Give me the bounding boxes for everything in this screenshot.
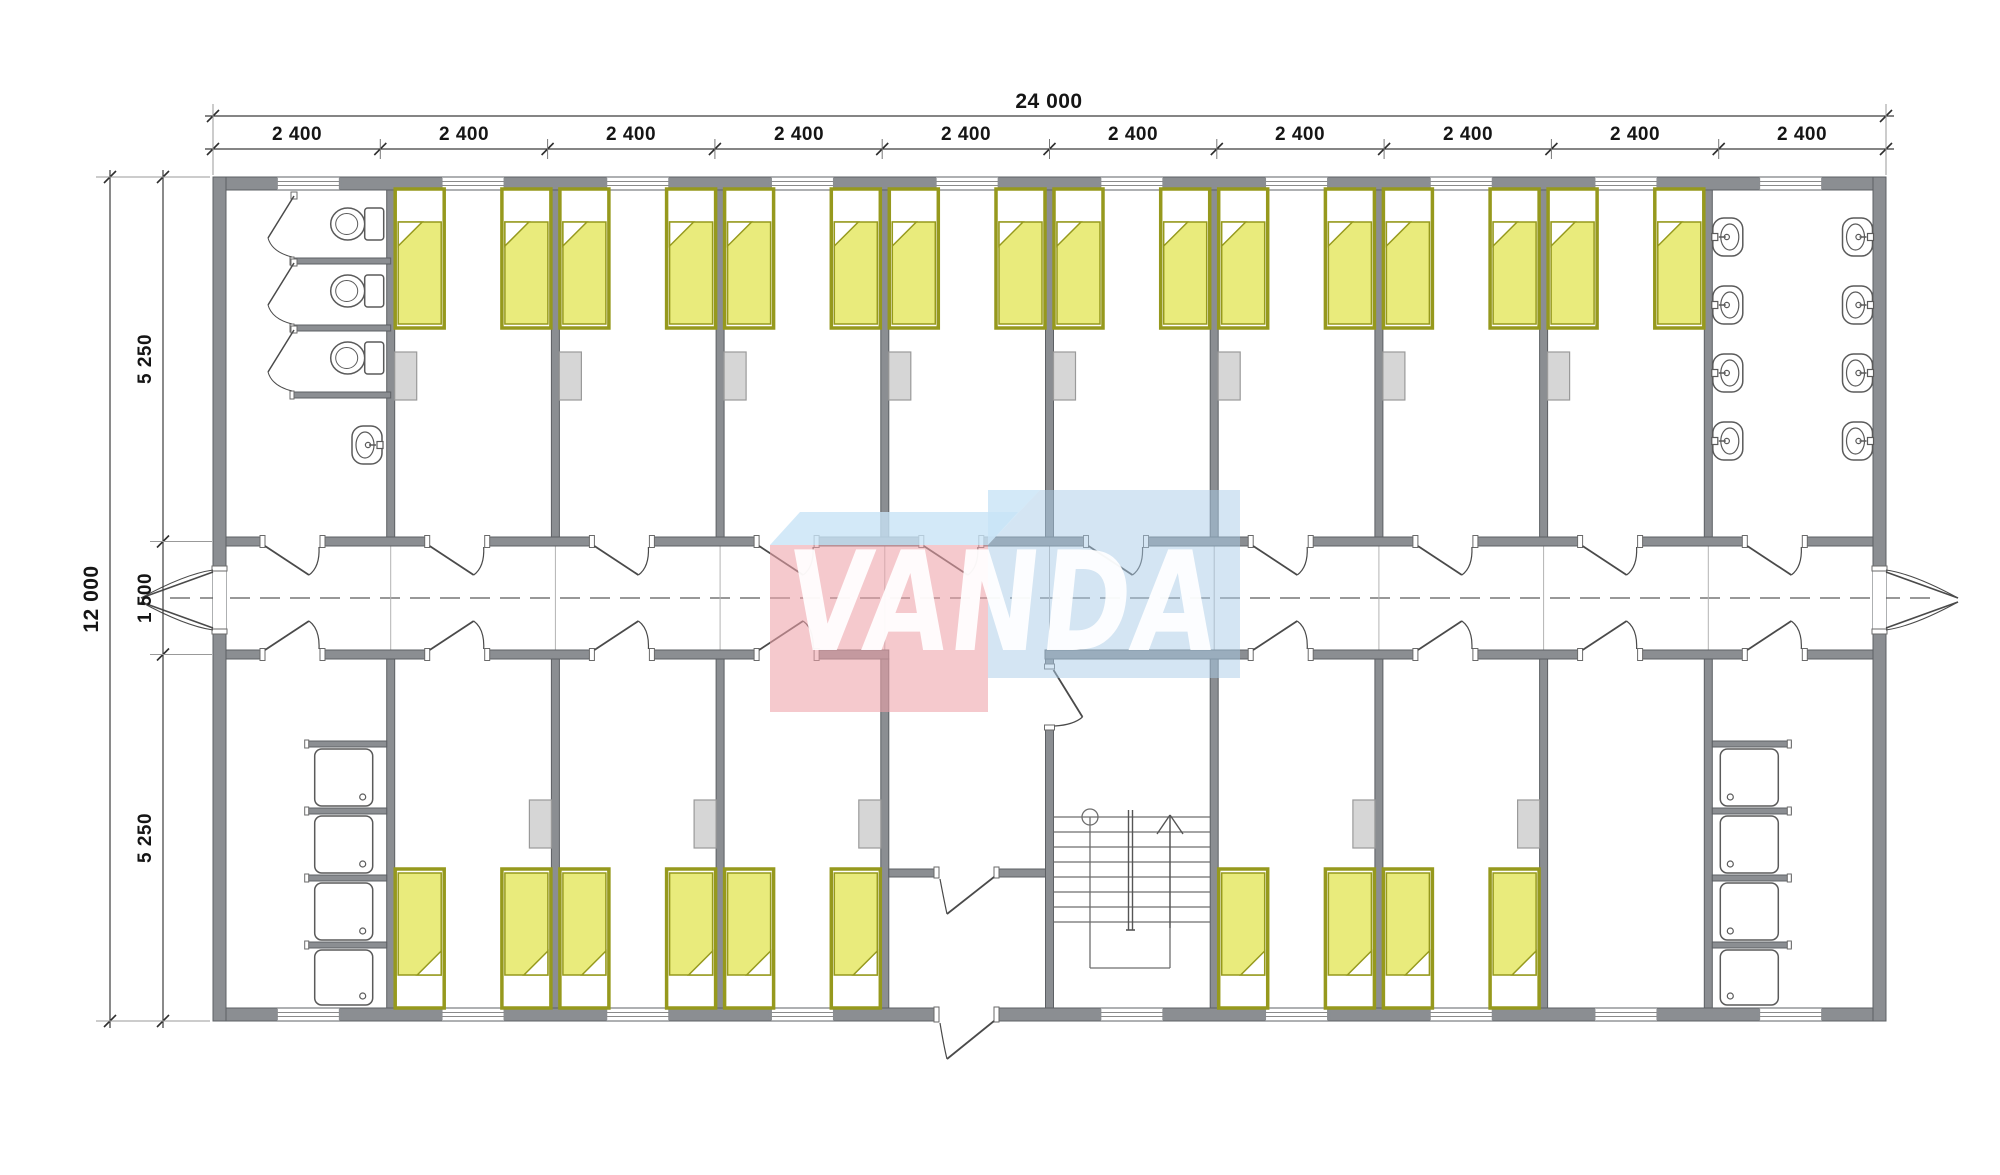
window-frame: [833, 1009, 836, 1020]
window: [1760, 1009, 1822, 1021]
door-jamb: [290, 391, 294, 399]
stall-door-leaf: [268, 196, 294, 238]
dim-module-2: 2 400: [424, 124, 504, 146]
sink-tap: [1868, 234, 1874, 241]
door-leaf: [1747, 621, 1791, 650]
door-swing-arc: [1791, 621, 1801, 649]
door-jamb: [305, 807, 309, 815]
dim-module-10: 2 400: [1762, 124, 1842, 146]
door-leaf: [1253, 621, 1297, 650]
door-swing-arc: [638, 621, 648, 649]
exterior-door-opening: [1873, 570, 1886, 630]
floor-plan-canvas: 24 000 2 400 2 400 2 400 2 400 2 400 2 4…: [0, 0, 2000, 1175]
door-jamb: [1872, 629, 1887, 634]
window-frame: [440, 1009, 443, 1020]
window: [442, 178, 504, 190]
dim-module-6: 2 400: [1093, 124, 1173, 146]
door-jamb: [1473, 536, 1478, 548]
stair-up-arrow: [1170, 815, 1183, 834]
shower-tray: [315, 816, 373, 873]
door-jamb: [260, 536, 265, 548]
shower-partition: [308, 942, 387, 948]
door-jamb: [305, 874, 309, 882]
dim-left-total: 12 000: [80, 565, 104, 632]
door-jamb: [994, 867, 999, 878]
door-swing-arc: [1627, 621, 1637, 649]
locker: [889, 352, 911, 400]
locker: [559, 352, 581, 400]
stall-door-leaf: [268, 263, 294, 305]
door-jamb: [934, 867, 939, 878]
door-leaf: [1886, 572, 1958, 598]
shower-partition: [1712, 808, 1791, 814]
window-frame: [1821, 1009, 1824, 1020]
sink-tap: [1712, 370, 1718, 377]
window: [442, 1009, 504, 1021]
door-jamb: [1578, 649, 1583, 661]
window: [771, 178, 833, 190]
door-opening: [1582, 650, 1639, 660]
window-frame: [275, 178, 278, 189]
door-leaf: [265, 621, 309, 650]
shower-partition: [308, 741, 387, 747]
shower-tray: [1720, 749, 1778, 806]
dim-module-7: 2 400: [1260, 124, 1340, 146]
window-frame: [1263, 1009, 1266, 1020]
door-jamb: [1787, 740, 1791, 748]
dim-left-segment-2: 1 500: [135, 573, 157, 623]
door-jamb: [649, 649, 654, 661]
door-opening: [593, 537, 650, 547]
door-jamb: [305, 941, 309, 949]
dim-module-5: 2 400: [926, 124, 1006, 146]
door-jamb: [1413, 649, 1418, 661]
stall-door-leaf: [268, 330, 294, 372]
door-swing-arc: [1791, 547, 1801, 575]
door-leaf: [594, 621, 638, 650]
door-swing-arc: [1462, 547, 1472, 575]
door-jamb: [754, 536, 759, 548]
window-frame: [1098, 1009, 1101, 1020]
stall-door-arc: [268, 305, 292, 324]
window-frame: [1821, 178, 1824, 189]
door-jamb: [305, 740, 309, 748]
door-swing-arc: [1055, 717, 1083, 726]
door-leaf: [1886, 602, 1958, 628]
door-jamb: [589, 649, 594, 661]
window-frame: [504, 1009, 507, 1020]
window-frame: [1162, 1009, 1165, 1020]
dim-module-4: 2 400: [759, 124, 839, 146]
shower-tray: [315, 883, 373, 940]
door-jamb: [1045, 725, 1055, 730]
door-jamb: [260, 649, 265, 661]
door-jamb: [1473, 649, 1478, 661]
door-jamb: [1802, 536, 1807, 548]
dim-module-8: 2 400: [1428, 124, 1508, 146]
window: [1430, 1009, 1492, 1021]
door-opening: [1582, 537, 1639, 547]
window-frame: [1592, 1009, 1595, 1020]
door-jamb: [1308, 536, 1313, 548]
door-opening: [1252, 537, 1309, 547]
sink-tap: [377, 442, 383, 449]
dim-top-total: 24 000: [949, 90, 1149, 114]
shower-partition: [308, 875, 387, 881]
window: [1430, 178, 1492, 190]
window: [607, 178, 669, 190]
toilet-stall-partition: [293, 392, 391, 398]
sink-tap: [1868, 370, 1874, 377]
window-frame: [1757, 1009, 1760, 1020]
shower-partition: [1712, 875, 1791, 881]
window: [607, 1009, 669, 1021]
sink-tap: [1712, 302, 1718, 309]
shower-tray: [1720, 816, 1778, 873]
door-jamb: [754, 649, 759, 661]
shower-partition: [308, 808, 387, 814]
locker: [395, 352, 417, 400]
locker: [1353, 800, 1375, 848]
door-jamb: [1742, 536, 1747, 548]
door-jamb: [1787, 941, 1791, 949]
door-swing-arc: [1627, 547, 1637, 575]
door-jamb: [649, 536, 654, 548]
locker: [724, 352, 746, 400]
toilet: [365, 275, 384, 307]
door-jamb: [291, 259, 297, 266]
dim-module-1: 2 400: [257, 124, 337, 146]
door-jamb: [1872, 566, 1887, 571]
window: [1266, 178, 1328, 190]
window-frame: [339, 1009, 342, 1020]
stall-door-arc: [268, 238, 292, 257]
dim-module-9: 2 400: [1595, 124, 1675, 146]
door-leaf: [1253, 546, 1297, 575]
exterior-door-opening: [213, 570, 226, 630]
window-frame: [1327, 1009, 1330, 1020]
toilet: [365, 342, 384, 374]
door-opening: [264, 537, 321, 547]
window-frame: [339, 178, 342, 189]
toilet-stall-partition: [293, 258, 391, 264]
door-jamb: [212, 566, 227, 571]
sink-tap: [1868, 438, 1874, 445]
window: [1595, 1009, 1657, 1021]
door-leaf: [947, 877, 994, 914]
stair-up-arrow: [1157, 815, 1170, 834]
door-opening: [429, 537, 486, 547]
door-jamb: [291, 192, 297, 199]
door-jamb: [1638, 649, 1643, 661]
door-opening: [938, 868, 995, 878]
shower-tray: [315, 749, 373, 806]
door-swing-arc: [940, 879, 947, 914]
door-jamb: [1413, 536, 1418, 548]
shower-tray: [1720, 950, 1778, 1005]
door-jamb: [1248, 649, 1253, 661]
window-frame: [275, 1009, 278, 1020]
door-jamb: [425, 649, 430, 661]
door-swing-arc: [638, 547, 648, 575]
door-leaf: [265, 546, 309, 575]
door-jamb: [320, 649, 325, 661]
window-frame: [604, 1009, 607, 1020]
stall-door-arc: [268, 372, 292, 391]
door-jamb: [1787, 807, 1791, 815]
window: [1101, 178, 1163, 190]
door-leaf: [594, 546, 638, 575]
shower-partition: [1712, 741, 1791, 747]
dim-left-segment-1: 5 250: [135, 334, 157, 384]
door-jamb: [212, 629, 227, 634]
door-jamb: [1802, 649, 1807, 661]
sink-tap: [1868, 302, 1874, 309]
door-leaf: [1747, 546, 1791, 575]
door-jamb: [1248, 536, 1253, 548]
entrance-door-opening: [938, 1008, 995, 1022]
door-opening: [1417, 537, 1474, 547]
vanda-logo-text: VANDA: [780, 528, 1162, 678]
window: [277, 1009, 339, 1021]
sink-tap: [1712, 234, 1718, 241]
door-opening: [1252, 650, 1309, 660]
door-swing-arc: [474, 547, 484, 575]
locker: [1548, 352, 1570, 400]
window: [1595, 178, 1657, 190]
door-leaf: [1583, 621, 1627, 650]
door-jamb: [291, 326, 297, 333]
window-frame: [769, 1009, 772, 1020]
door-jamb: [1742, 649, 1747, 661]
door-jamb: [485, 649, 490, 661]
door-jamb: [1308, 649, 1313, 661]
shower-tray: [315, 950, 373, 1005]
door-swing-arc: [1297, 621, 1307, 649]
door-jamb: [1578, 536, 1583, 548]
dim-left-segment-3: 5 250: [135, 813, 157, 863]
door-jamb: [589, 536, 594, 548]
door-leaf: [430, 621, 474, 650]
door-opening: [429, 650, 486, 660]
door-swing-arc: [940, 1023, 947, 1059]
door-leaf: [1418, 546, 1462, 575]
door-jamb: [934, 1007, 939, 1022]
locker: [1218, 352, 1240, 400]
window: [1101, 1009, 1163, 1021]
door-swing-arc: [474, 621, 484, 649]
window: [771, 1009, 833, 1021]
door-opening: [593, 650, 650, 660]
locker: [694, 800, 716, 848]
door-swing-arc: [1462, 621, 1472, 649]
door-opening: [264, 650, 321, 660]
sink-tap: [1712, 438, 1718, 445]
door-jamb: [994, 1007, 999, 1022]
door-leaf: [1583, 546, 1627, 575]
locker: [859, 800, 881, 848]
shower-tray: [1720, 883, 1778, 940]
door-opening: [1417, 650, 1474, 660]
door-jamb: [485, 536, 490, 548]
locker: [529, 800, 551, 848]
door-swing-arc: [309, 547, 319, 575]
locker: [1054, 352, 1076, 400]
door-jamb: [425, 536, 430, 548]
partition-bottom-9: [1704, 659, 1712, 1008]
toilet: [365, 208, 384, 240]
locker: [1518, 800, 1540, 848]
dim-module-3: 2 400: [591, 124, 671, 146]
door-swing-arc: [1297, 547, 1307, 575]
window: [1266, 1009, 1328, 1021]
door-leaf: [430, 546, 474, 575]
window-frame: [1757, 178, 1760, 189]
window: [277, 178, 339, 190]
door-jamb: [1638, 536, 1643, 548]
window: [936, 178, 998, 190]
window-frame: [1428, 1009, 1431, 1020]
door-swing-arc: [309, 621, 319, 649]
window: [1760, 178, 1822, 190]
door-opening: [1746, 650, 1803, 660]
locker: [1383, 352, 1405, 400]
window-frame: [668, 1009, 671, 1020]
door-jamb: [1787, 874, 1791, 882]
entrance-door-leaf: [947, 1021, 994, 1059]
window-frame: [1656, 1009, 1659, 1020]
window-frame: [1492, 1009, 1495, 1020]
door-opening: [1746, 537, 1803, 547]
door-jamb: [320, 536, 325, 548]
toilet-stall-partition: [293, 325, 391, 331]
shower-partition: [1712, 942, 1791, 948]
door-leaf: [1418, 621, 1462, 650]
